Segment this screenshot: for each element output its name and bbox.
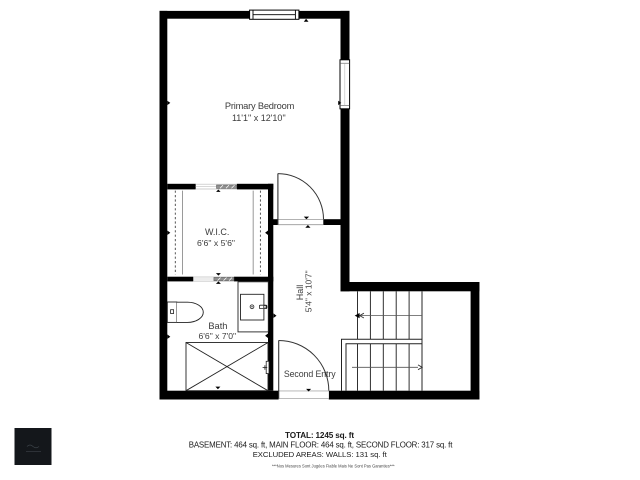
svg-text:6'6" x 5'6": 6'6" x 5'6" [197,238,235,248]
svg-text:***Nos Mesures Sont Jugées Fia: ***Nos Mesures Sont Jugées Fiable Mais N… [272,463,395,468]
svg-text:BASEMENT: 464 sq. ft, MAIN FLO: BASEMENT: 464 sq. ft, MAIN FLOOR: 464 sq… [189,440,454,449]
svg-text:W.I.C.: W.I.C. [205,227,230,237]
svg-text:Bath: Bath [208,321,227,331]
svg-text:5'4" x 10'7": 5'4" x 10'7" [304,270,314,312]
svg-text:Second Entry: Second Entry [284,369,336,379]
svg-text:EXCLUDED AREAS: WALLS: 131 sq.: EXCLUDED AREAS: WALLS: 131 sq. ft [253,450,388,459]
svg-text:TOTAL: 1245 sq. ft: TOTAL: 1245 sq. ft [285,431,354,440]
svg-text:6'6" x 7'0": 6'6" x 7'0" [199,331,237,341]
svg-text:11'1" x 12'10": 11'1" x 12'10" [232,113,286,123]
svg-text:Primary Bedroom: Primary Bedroom [225,101,295,111]
